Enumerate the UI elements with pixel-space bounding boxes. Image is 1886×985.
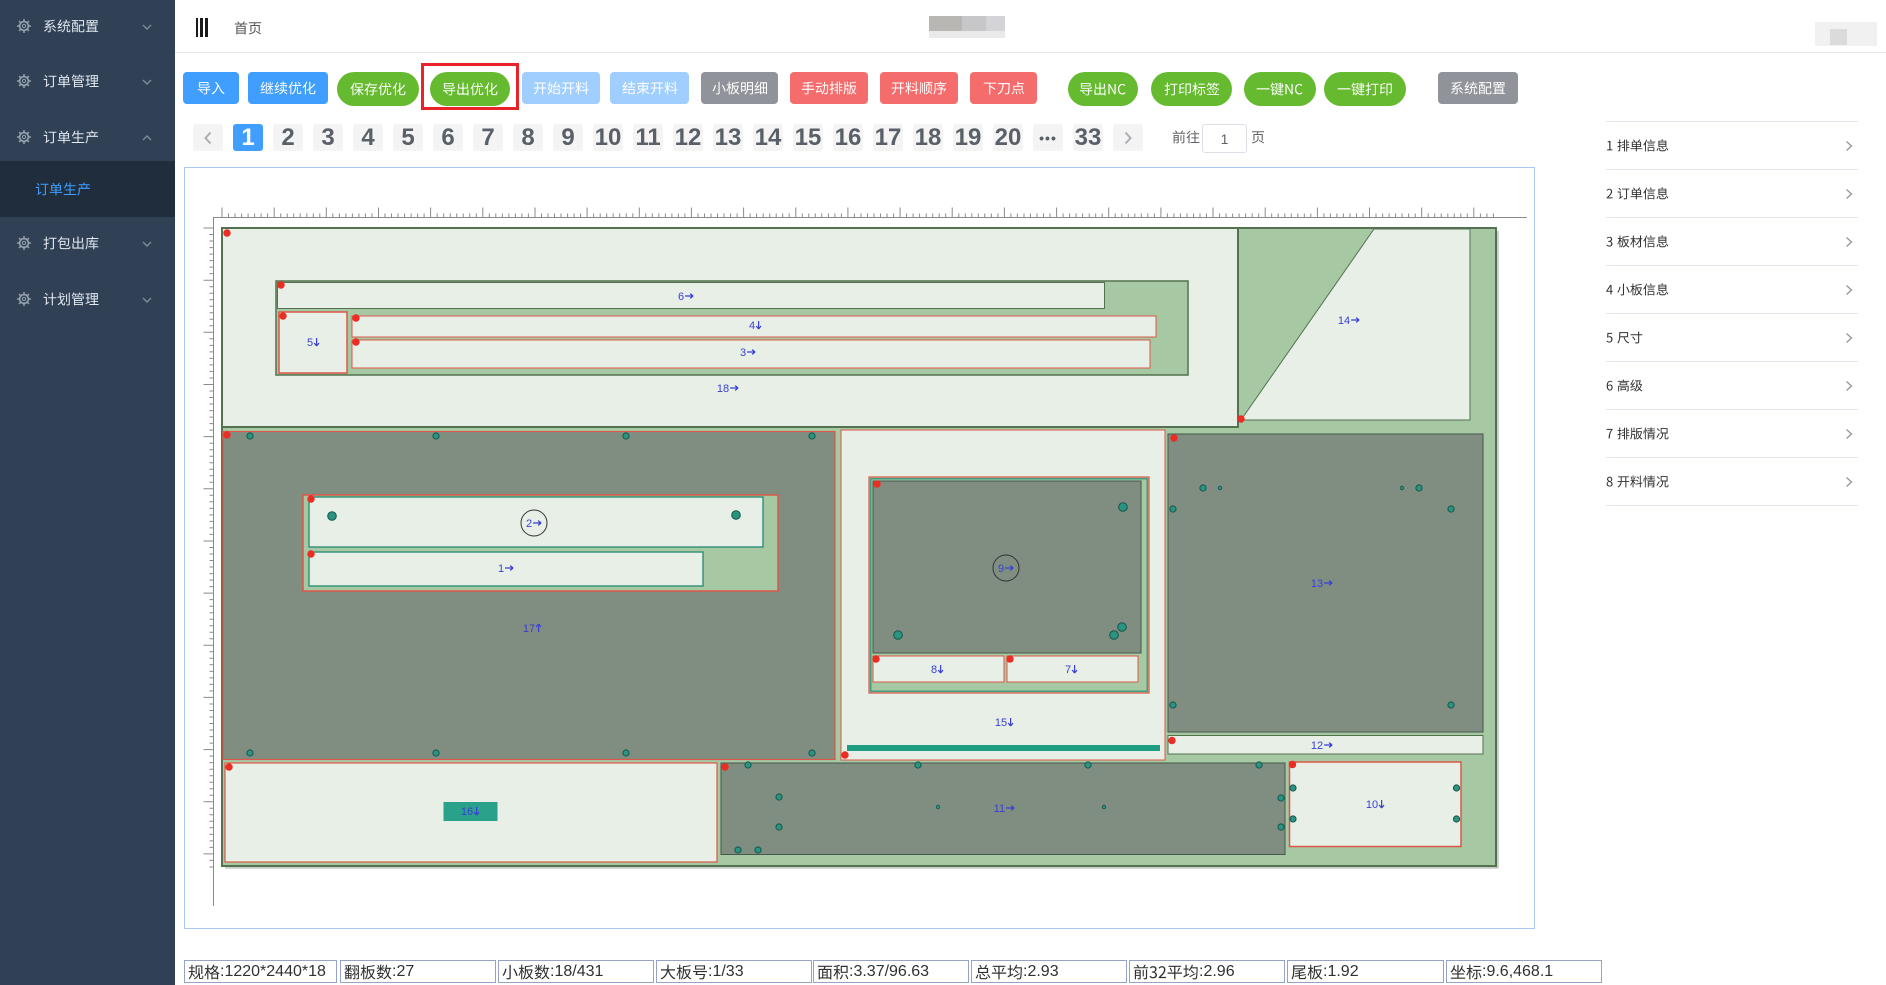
svg-text:14: 14	[1338, 315, 1350, 327]
svg-text:15: 15	[995, 717, 1007, 729]
svg-text:10: 10	[1366, 799, 1378, 811]
svg-text:18: 18	[717, 383, 729, 395]
svg-text:11: 11	[994, 803, 1005, 815]
svg-text:5: 5	[307, 337, 313, 349]
svg-text:3: 3	[740, 347, 746, 359]
svg-text:2: 2	[526, 518, 532, 530]
svg-text:1: 1	[498, 563, 504, 575]
svg-text:4: 4	[749, 320, 755, 332]
svg-text:16: 16	[461, 806, 473, 818]
svg-text:6: 6	[678, 291, 684, 303]
svg-text:13: 13	[1311, 578, 1323, 590]
svg-text:7: 7	[1065, 664, 1071, 676]
svg-text:9: 9	[998, 563, 1004, 575]
svg-text:8: 8	[931, 664, 937, 676]
svg-text:12: 12	[1311, 740, 1323, 752]
svg-text:17: 17	[523, 623, 535, 635]
